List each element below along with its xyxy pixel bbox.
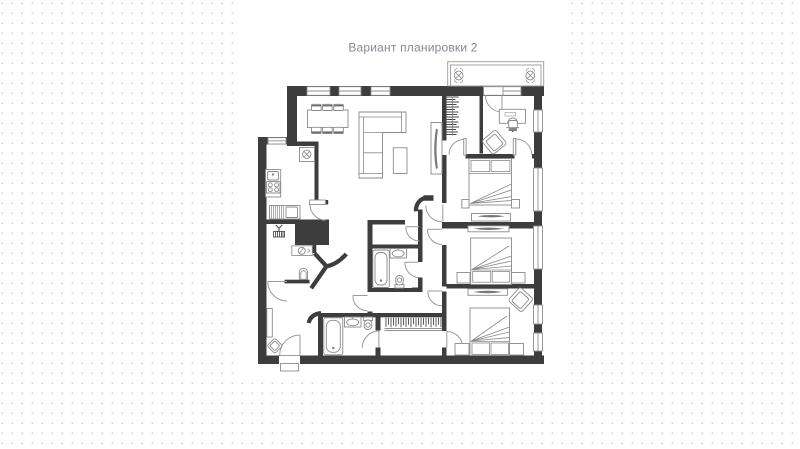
svg-text:Вариант планировки 2: Вариант планировки 2	[348, 41, 477, 55]
